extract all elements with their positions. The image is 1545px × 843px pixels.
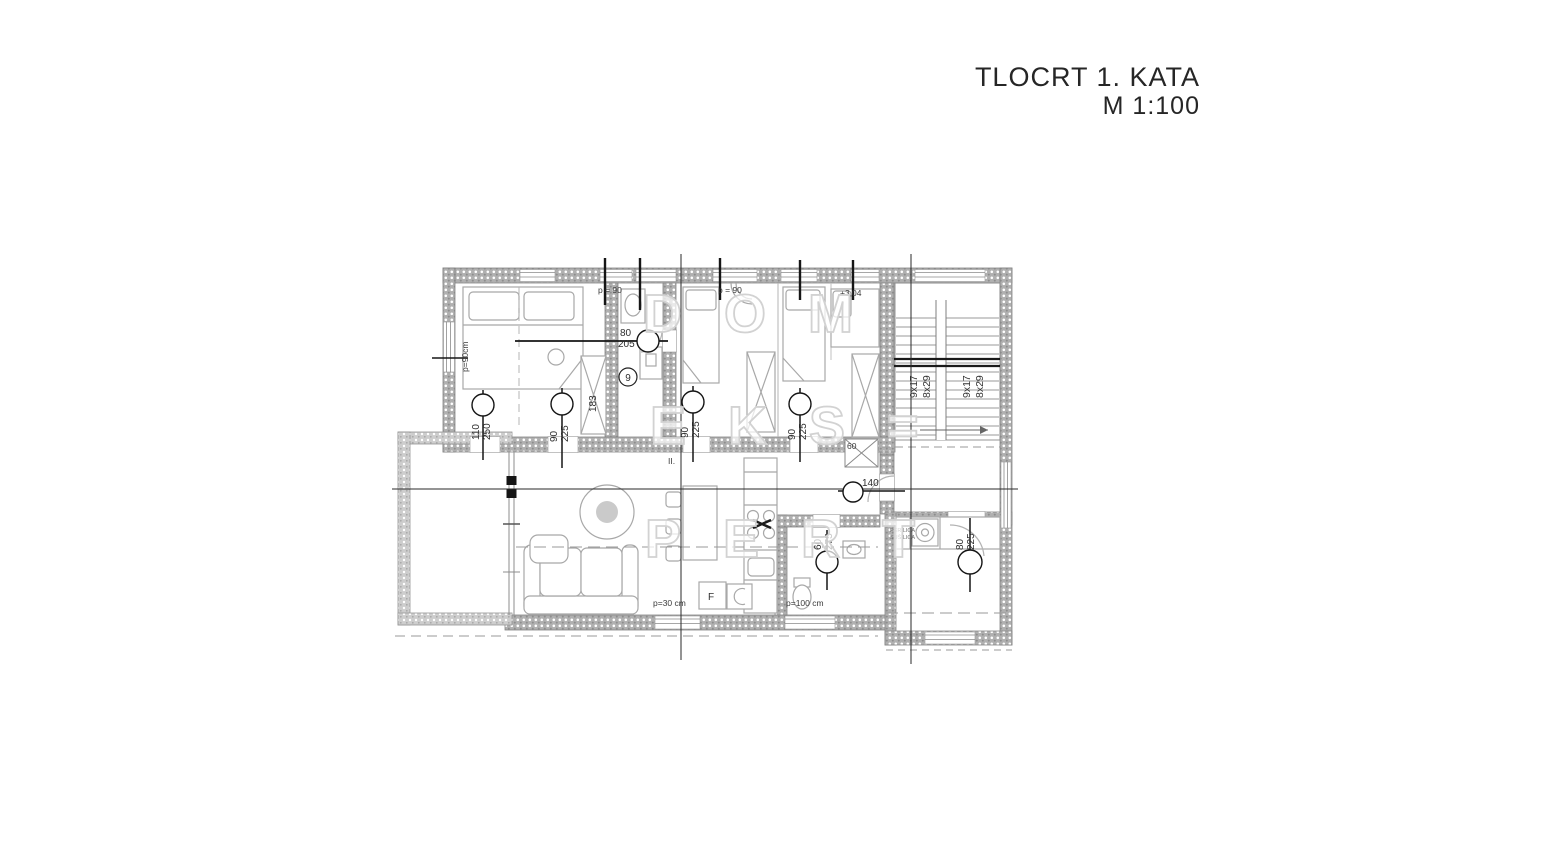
door-balcony-w: 110 bbox=[471, 424, 482, 440]
glass-sliding-door bbox=[503, 452, 520, 615]
door-corridor-width: 140 bbox=[862, 478, 879, 489]
wardrobe-width: 183 bbox=[588, 395, 599, 412]
door-laundry-h: 225 bbox=[966, 533, 977, 550]
bed-double bbox=[463, 287, 583, 389]
wardrobe-1 bbox=[581, 356, 606, 434]
parapet-living: p=30 cm bbox=[653, 598, 686, 608]
floor-plan: 110 250 90 225 80 205 90 225 90 225 60 2… bbox=[0, 0, 1545, 843]
watermark-line-2: EKS= bbox=[650, 396, 961, 456]
watermark-line-1: DOM bbox=[643, 284, 895, 344]
watermark-line-3: PERT bbox=[645, 509, 957, 569]
parapet-left: p=90cm bbox=[460, 342, 470, 372]
terrace-walls bbox=[398, 432, 512, 625]
hall-mark: II. bbox=[668, 456, 675, 466]
door-balcony-h: 250 bbox=[482, 423, 493, 440]
parapet-bathroom: p=100 cm bbox=[786, 598, 824, 608]
door-bedroom1-w: 90 bbox=[549, 430, 560, 442]
stair-flight1-rise: 8x29 bbox=[921, 375, 933, 398]
page: TLOCRT 1. KATA M 1:100 bbox=[0, 0, 1545, 843]
room-number: 9 bbox=[625, 373, 631, 384]
stair-flight1-steps: 9x17 bbox=[908, 375, 920, 398]
fridge-label: F bbox=[708, 592, 714, 603]
door-bedroom1-h: 225 bbox=[560, 425, 571, 442]
armchair bbox=[530, 535, 568, 563]
stair-flight2-rise: 8x29 bbox=[974, 375, 986, 398]
parapet-top-1: p = 90 bbox=[598, 285, 622, 295]
door-bath-top-h: 205 bbox=[618, 339, 635, 350]
washbasin bbox=[621, 289, 645, 323]
stair-flight2-steps: 9x17 bbox=[961, 375, 973, 398]
chair bbox=[548, 349, 564, 365]
door-bath-top-w: 80 bbox=[620, 328, 632, 339]
oven bbox=[727, 584, 752, 609]
plant bbox=[596, 501, 618, 523]
